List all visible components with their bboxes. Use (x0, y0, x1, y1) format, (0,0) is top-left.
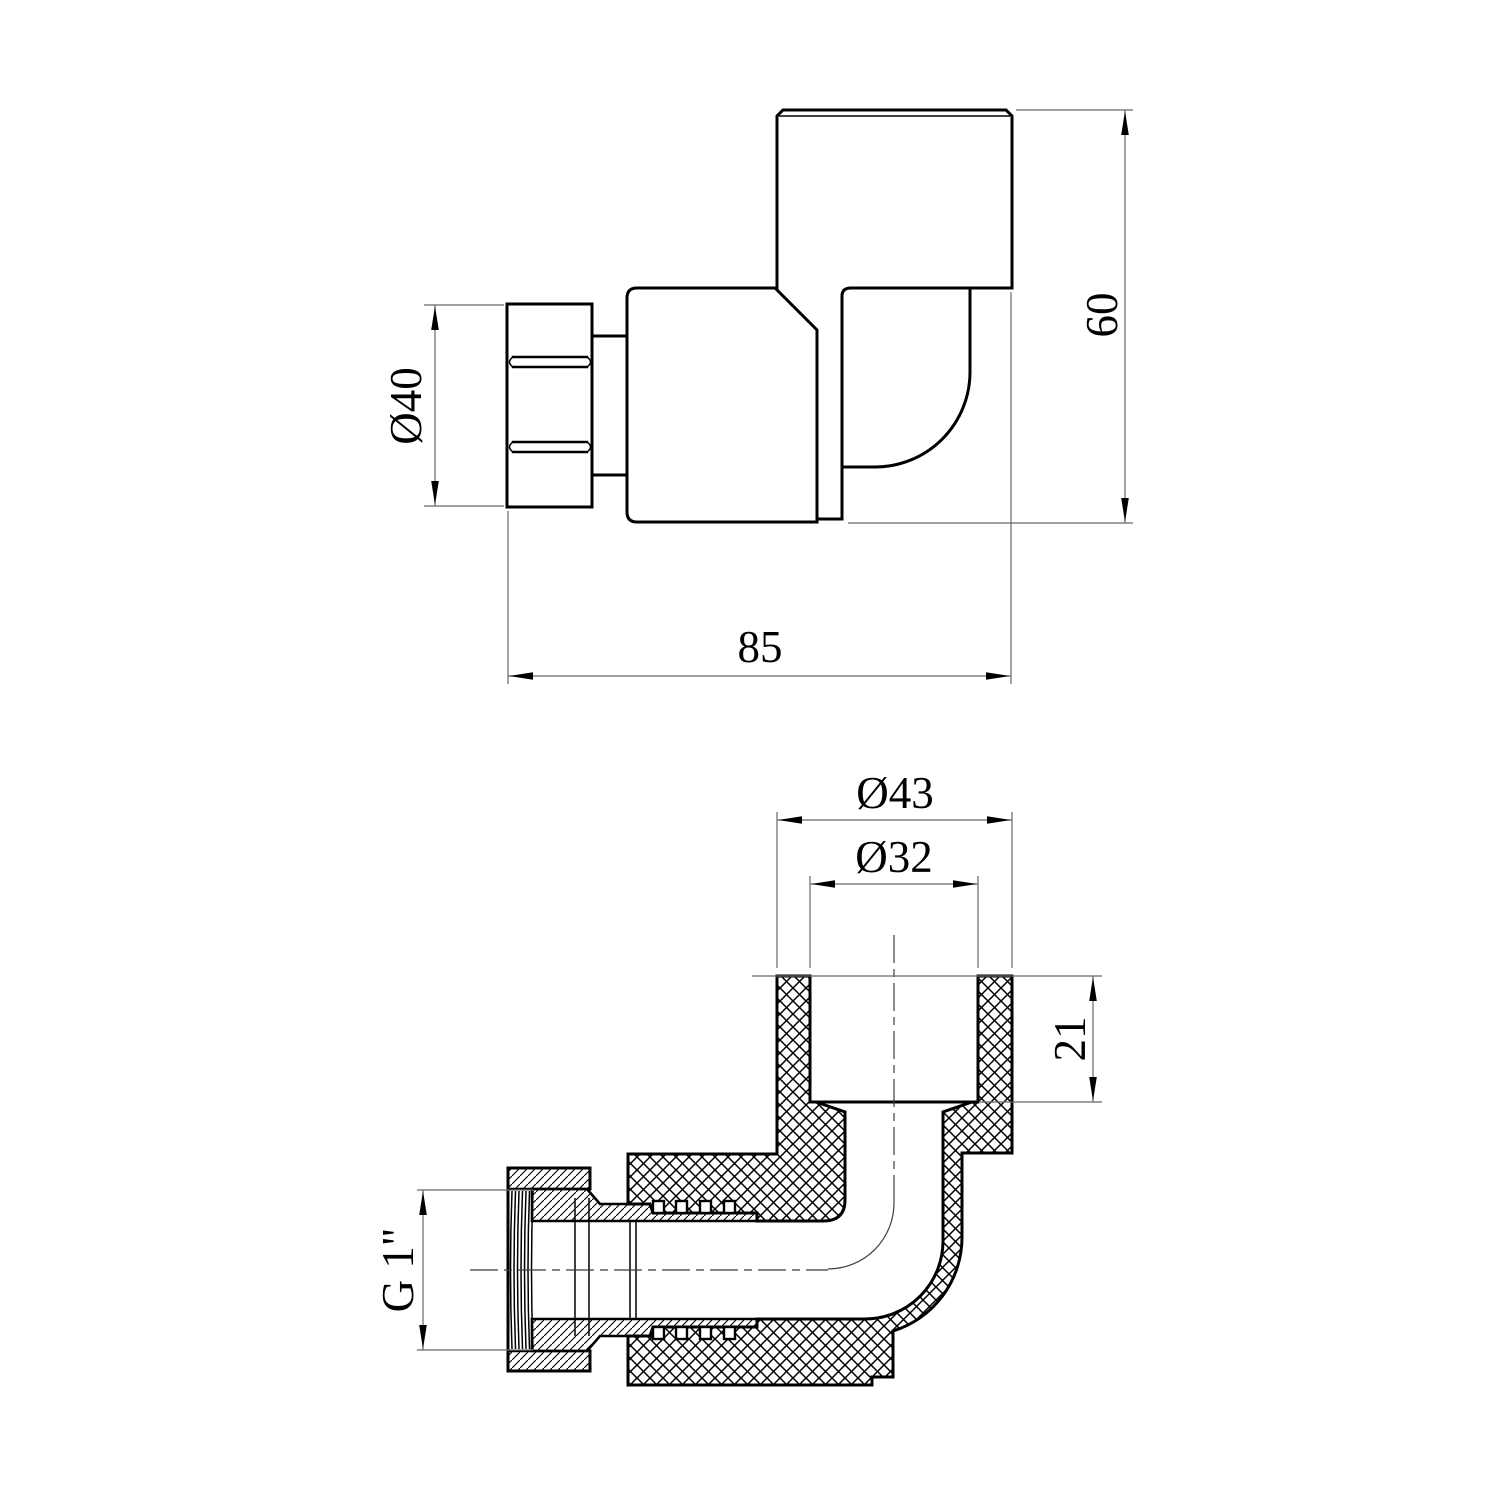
dim-text-thread: G 1" (373, 1228, 423, 1313)
dim-text-socket-id: Ø32 (855, 832, 933, 882)
elbow-bend-edge (842, 288, 970, 467)
tooth (653, 1327, 664, 1339)
arrow-right-icon (986, 672, 1010, 680)
dim-text-height: 60 (1077, 293, 1127, 338)
arrow-down-icon (1089, 1077, 1097, 1101)
vertical-socket (777, 110, 1012, 288)
arrow-up-icon (419, 1191, 427, 1215)
neck-lines (592, 336, 627, 475)
tooth (724, 1327, 735, 1339)
nut-wall-hatch-bottom (508, 1350, 590, 1371)
tooth (700, 1201, 711, 1213)
arrow-left-icon (509, 672, 533, 680)
elbow-rear-edge (817, 288, 1012, 519)
tooth (653, 1201, 664, 1213)
dimension-nut-od: Ø40 (381, 305, 504, 506)
nut-wall-hatch-top (508, 1168, 590, 1189)
section-view: Ø43 Ø32 21 G 1" (373, 768, 1102, 1385)
dimension-height: 60 (848, 110, 1133, 523)
side-view: Ø40 60 85 (381, 110, 1133, 684)
arrow-down-icon (431, 481, 439, 505)
drawing-page: Ø40 60 85 (0, 0, 1500, 1500)
tooth (724, 1201, 735, 1213)
arrow-right-icon (987, 816, 1011, 824)
arrow-up-icon (1089, 977, 1097, 1001)
arrow-left-icon (811, 880, 835, 888)
nut-flat-arcs (510, 357, 591, 452)
arrow-left-icon (778, 816, 802, 824)
nut-hex-flats (513, 357, 587, 452)
dimension-socket-depth: 21 (1045, 976, 1097, 1102)
dim-text-socket-depth: 21 (1045, 1017, 1095, 1062)
dim-text-length: 85 (738, 622, 783, 672)
dim-lines-40 (424, 305, 504, 506)
tooth (676, 1327, 687, 1339)
arrow-up-icon (1121, 111, 1129, 135)
elbow-section-upper (628, 976, 845, 1221)
dimension-length: 85 (508, 292, 1011, 684)
dim-text-nut-od: Ø40 (381, 367, 431, 445)
fitting-body (627, 288, 817, 522)
arrow-down-icon (419, 1325, 427, 1349)
arrow-down-icon (1121, 498, 1129, 522)
tooth (676, 1201, 687, 1213)
union-nut-outline (507, 304, 592, 507)
arrow-up-icon (431, 306, 439, 330)
tooth (700, 1327, 711, 1339)
technical-drawing-canvas: Ø40 60 85 (0, 0, 1500, 1500)
dim-text-socket-od: Ø43 (856, 768, 934, 818)
nut-body (507, 304, 592, 507)
arrow-right-icon (953, 880, 977, 888)
